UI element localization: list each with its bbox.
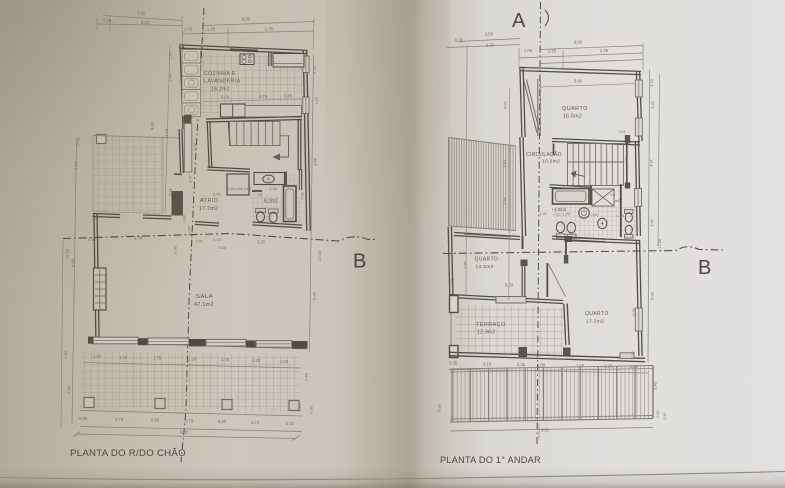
- svg-text:LAVANDERIA: LAVANDERIA: [204, 79, 241, 85]
- svg-text:2.20: 2.20: [192, 142, 197, 150]
- svg-text:10.5m2: 10.5m2: [542, 159, 560, 165]
- svg-text:1.05: 1.05: [184, 26, 193, 31]
- svg-text:0.55: 0.55: [218, 246, 225, 250]
- svg-text:17.2m2: 17.2m2: [586, 319, 604, 325]
- svg-text:0.16: 0.16: [554, 212, 561, 216]
- svg-text:0.30: 0.30: [88, 238, 95, 242]
- svg-text:0.30: 0.30: [151, 418, 160, 423]
- svg-text:1.25: 1.25: [562, 213, 569, 217]
- svg-text:4.37: 4.37: [649, 158, 654, 167]
- svg-text:TERRAÇO: TERRAÇO: [476, 322, 506, 328]
- svg-text:0.30: 0.30: [663, 412, 667, 419]
- svg-text:0.30: 0.30: [218, 419, 227, 424]
- svg-text:17.00: 17.00: [317, 250, 322, 261]
- svg-text:0.30: 0.30: [298, 404, 302, 411]
- svg-text:ATRIO: ATRIO: [200, 198, 219, 204]
- svg-text:B: B: [353, 251, 366, 273]
- svg-text:1.45: 1.45: [284, 94, 293, 99]
- svg-text:2.00: 2.00: [213, 192, 222, 197]
- svg-text:6.00: 6.00: [242, 16, 251, 21]
- svg-text:2.88: 2.88: [464, 261, 468, 268]
- svg-text:1.20: 1.20: [119, 355, 128, 360]
- svg-text:3.75: 3.75: [265, 26, 274, 31]
- svg-text:2.73: 2.73: [251, 420, 260, 425]
- svg-text:1.23: 1.23: [169, 52, 173, 59]
- svg-text:16.2m2: 16.2m2: [211, 87, 230, 93]
- svg-text:A: A: [512, 10, 526, 32]
- svg-text:1.20: 1.20: [280, 359, 289, 364]
- svg-text:1.90: 1.90: [195, 239, 204, 244]
- svg-text:3.14: 3.14: [73, 161, 78, 170]
- svg-text:0.88: 0.88: [183, 215, 187, 222]
- svg-text:6.00: 6.00: [574, 39, 583, 44]
- svg-text:2.40: 2.40: [653, 381, 658, 390]
- svg-text:2.40: 2.40: [63, 350, 68, 359]
- svg-text:4.02: 4.02: [503, 100, 508, 109]
- svg-text:0.24: 0.24: [213, 238, 220, 242]
- svg-text:0.30: 0.30: [286, 421, 295, 426]
- svg-text:1.20: 1.20: [314, 96, 319, 104]
- svg-text:1.20: 1.20: [650, 100, 655, 108]
- svg-text:2.40: 2.40: [304, 372, 309, 381]
- svg-text:16.5m2: 16.5m2: [563, 114, 582, 120]
- svg-text:0.30: 0.30: [301, 193, 305, 200]
- svg-text:+4.0m2: +4.0m2: [552, 207, 567, 212]
- svg-text:1.80: 1.80: [537, 363, 546, 368]
- svg-text:SALA: SALA: [196, 294, 213, 300]
- svg-text:0.99: 0.99: [174, 246, 178, 253]
- svg-text:QUARTO: QUARTO: [562, 106, 588, 112]
- svg-text:0.75: 0.75: [259, 94, 268, 99]
- svg-text:3.50: 3.50: [485, 31, 494, 36]
- svg-text:1.23: 1.23: [312, 66, 317, 74]
- svg-text:PLANTA DO 1° ANDAR: PLANTA DO 1° ANDAR: [440, 455, 541, 465]
- svg-text:6.00: 6.00: [70, 258, 75, 267]
- svg-text:1.23: 1.23: [649, 79, 654, 87]
- svg-text:8.00: 8.00: [150, 121, 155, 130]
- svg-text:2.73: 2.73: [185, 418, 194, 423]
- svg-text:0.30: 0.30: [631, 351, 635, 358]
- svg-text:1.75: 1.75: [221, 357, 230, 362]
- svg-text:PLANTA DO R/DO CHÃO: PLANTA DO R/DO CHÃO: [70, 448, 186, 459]
- svg-text:6.2m2: 6.2m2: [264, 199, 278, 205]
- svg-text:1.05: 1.05: [524, 48, 533, 53]
- svg-text:0.30: 0.30: [103, 17, 112, 22]
- svg-text:1.35: 1.35: [616, 214, 623, 218]
- svg-text:1.75: 1.75: [153, 356, 162, 361]
- svg-text:0.36: 0.36: [451, 278, 455, 285]
- svg-text:CIRCULAÇÃO: CIRCULAÇÃO: [526, 151, 562, 158]
- svg-text:3.50: 3.50: [137, 10, 146, 15]
- svg-text:0.30: 0.30: [438, 404, 442, 411]
- svg-text:1.20: 1.20: [649, 218, 654, 226]
- svg-text:12.50: 12.50: [65, 248, 70, 259]
- svg-text:1.20: 1.20: [93, 354, 102, 359]
- svg-text:+S: +S: [257, 193, 262, 198]
- svg-text:0.30: 0.30: [310, 406, 314, 413]
- svg-text:2.73: 2.73: [115, 417, 124, 422]
- svg-text:0.15: 0.15: [188, 227, 192, 234]
- svg-text:5.40: 5.40: [574, 79, 583, 84]
- svg-text:1.20: 1.20: [207, 26, 216, 31]
- svg-text:1.20: 1.20: [548, 48, 557, 53]
- svg-text:6.00: 6.00: [650, 291, 655, 300]
- svg-text:47.1m2: 47.1m2: [194, 302, 214, 308]
- svg-text:0.15: 0.15: [619, 130, 626, 134]
- svg-text:13.2m2: 13.2m2: [476, 264, 494, 270]
- svg-text:3.56: 3.56: [631, 308, 636, 316]
- svg-text:6.39: 6.39: [312, 291, 317, 300]
- svg-text:3.66: 3.66: [502, 196, 507, 205]
- svg-text:3.18: 3.18: [221, 95, 230, 100]
- svg-text:1.57: 1.57: [188, 175, 193, 183]
- svg-text:QUARTO: QUARTO: [585, 311, 609, 317]
- svg-text:12.3m2: 12.3m2: [477, 330, 495, 336]
- svg-text:m2: m2: [615, 199, 620, 203]
- svg-text:COZINHA E: COZINHA E: [204, 71, 236, 77]
- svg-text:0.99: 0.99: [169, 188, 173, 195]
- svg-text:0.30: 0.30: [79, 416, 88, 421]
- svg-text:QUARTO: QUARTO: [475, 257, 499, 263]
- svg-text:1.20: 1.20: [252, 358, 261, 363]
- svg-text:9.80: 9.80: [180, 430, 189, 435]
- svg-text:0.15 0.84 0.15: 0.15 0.84 0.15: [227, 187, 251, 191]
- svg-text:3.25: 3.25: [257, 240, 266, 245]
- svg-text:3.75: 3.75: [600, 48, 609, 53]
- svg-text:3.98: 3.98: [313, 157, 318, 166]
- svg-text:0.30: 0.30: [656, 410, 660, 417]
- svg-text:3.78: 3.78: [134, 236, 143, 241]
- svg-text:9.50: 9.50: [541, 428, 550, 433]
- svg-text:3.15: 3.15: [486, 42, 495, 47]
- svg-text:B: B: [698, 257, 711, 279]
- svg-text:5.50: 5.50: [505, 283, 514, 288]
- svg-text:1.20: 1.20: [169, 74, 173, 81]
- svg-text:0.30: 0.30: [75, 136, 80, 144]
- svg-text:0.30: 0.30: [66, 385, 71, 393]
- svg-text:3.58: 3.58: [164, 128, 169, 137]
- svg-text:1.20: 1.20: [539, 212, 546, 216]
- svg-text:1.20: 1.20: [188, 356, 197, 361]
- svg-text:3.15: 3.15: [141, 20, 150, 25]
- svg-text:17.7m2: 17.7m2: [199, 206, 218, 212]
- svg-text:2.39: 2.39: [625, 156, 629, 163]
- svg-text:1.90: 1.90: [502, 159, 507, 167]
- svg-text:1.5: 1.5: [610, 193, 615, 197]
- svg-text:0.35: 0.35: [517, 362, 526, 367]
- svg-text:2.18: 2.18: [269, 186, 277, 191]
- svg-text:0.35: 0.35: [591, 213, 598, 217]
- svg-text:0.30: 0.30: [455, 37, 464, 42]
- svg-text:17.00: 17.00: [657, 238, 662, 249]
- svg-text:3.15: 3.15: [483, 362, 492, 367]
- svg-text:0.35: 0.35: [449, 361, 458, 366]
